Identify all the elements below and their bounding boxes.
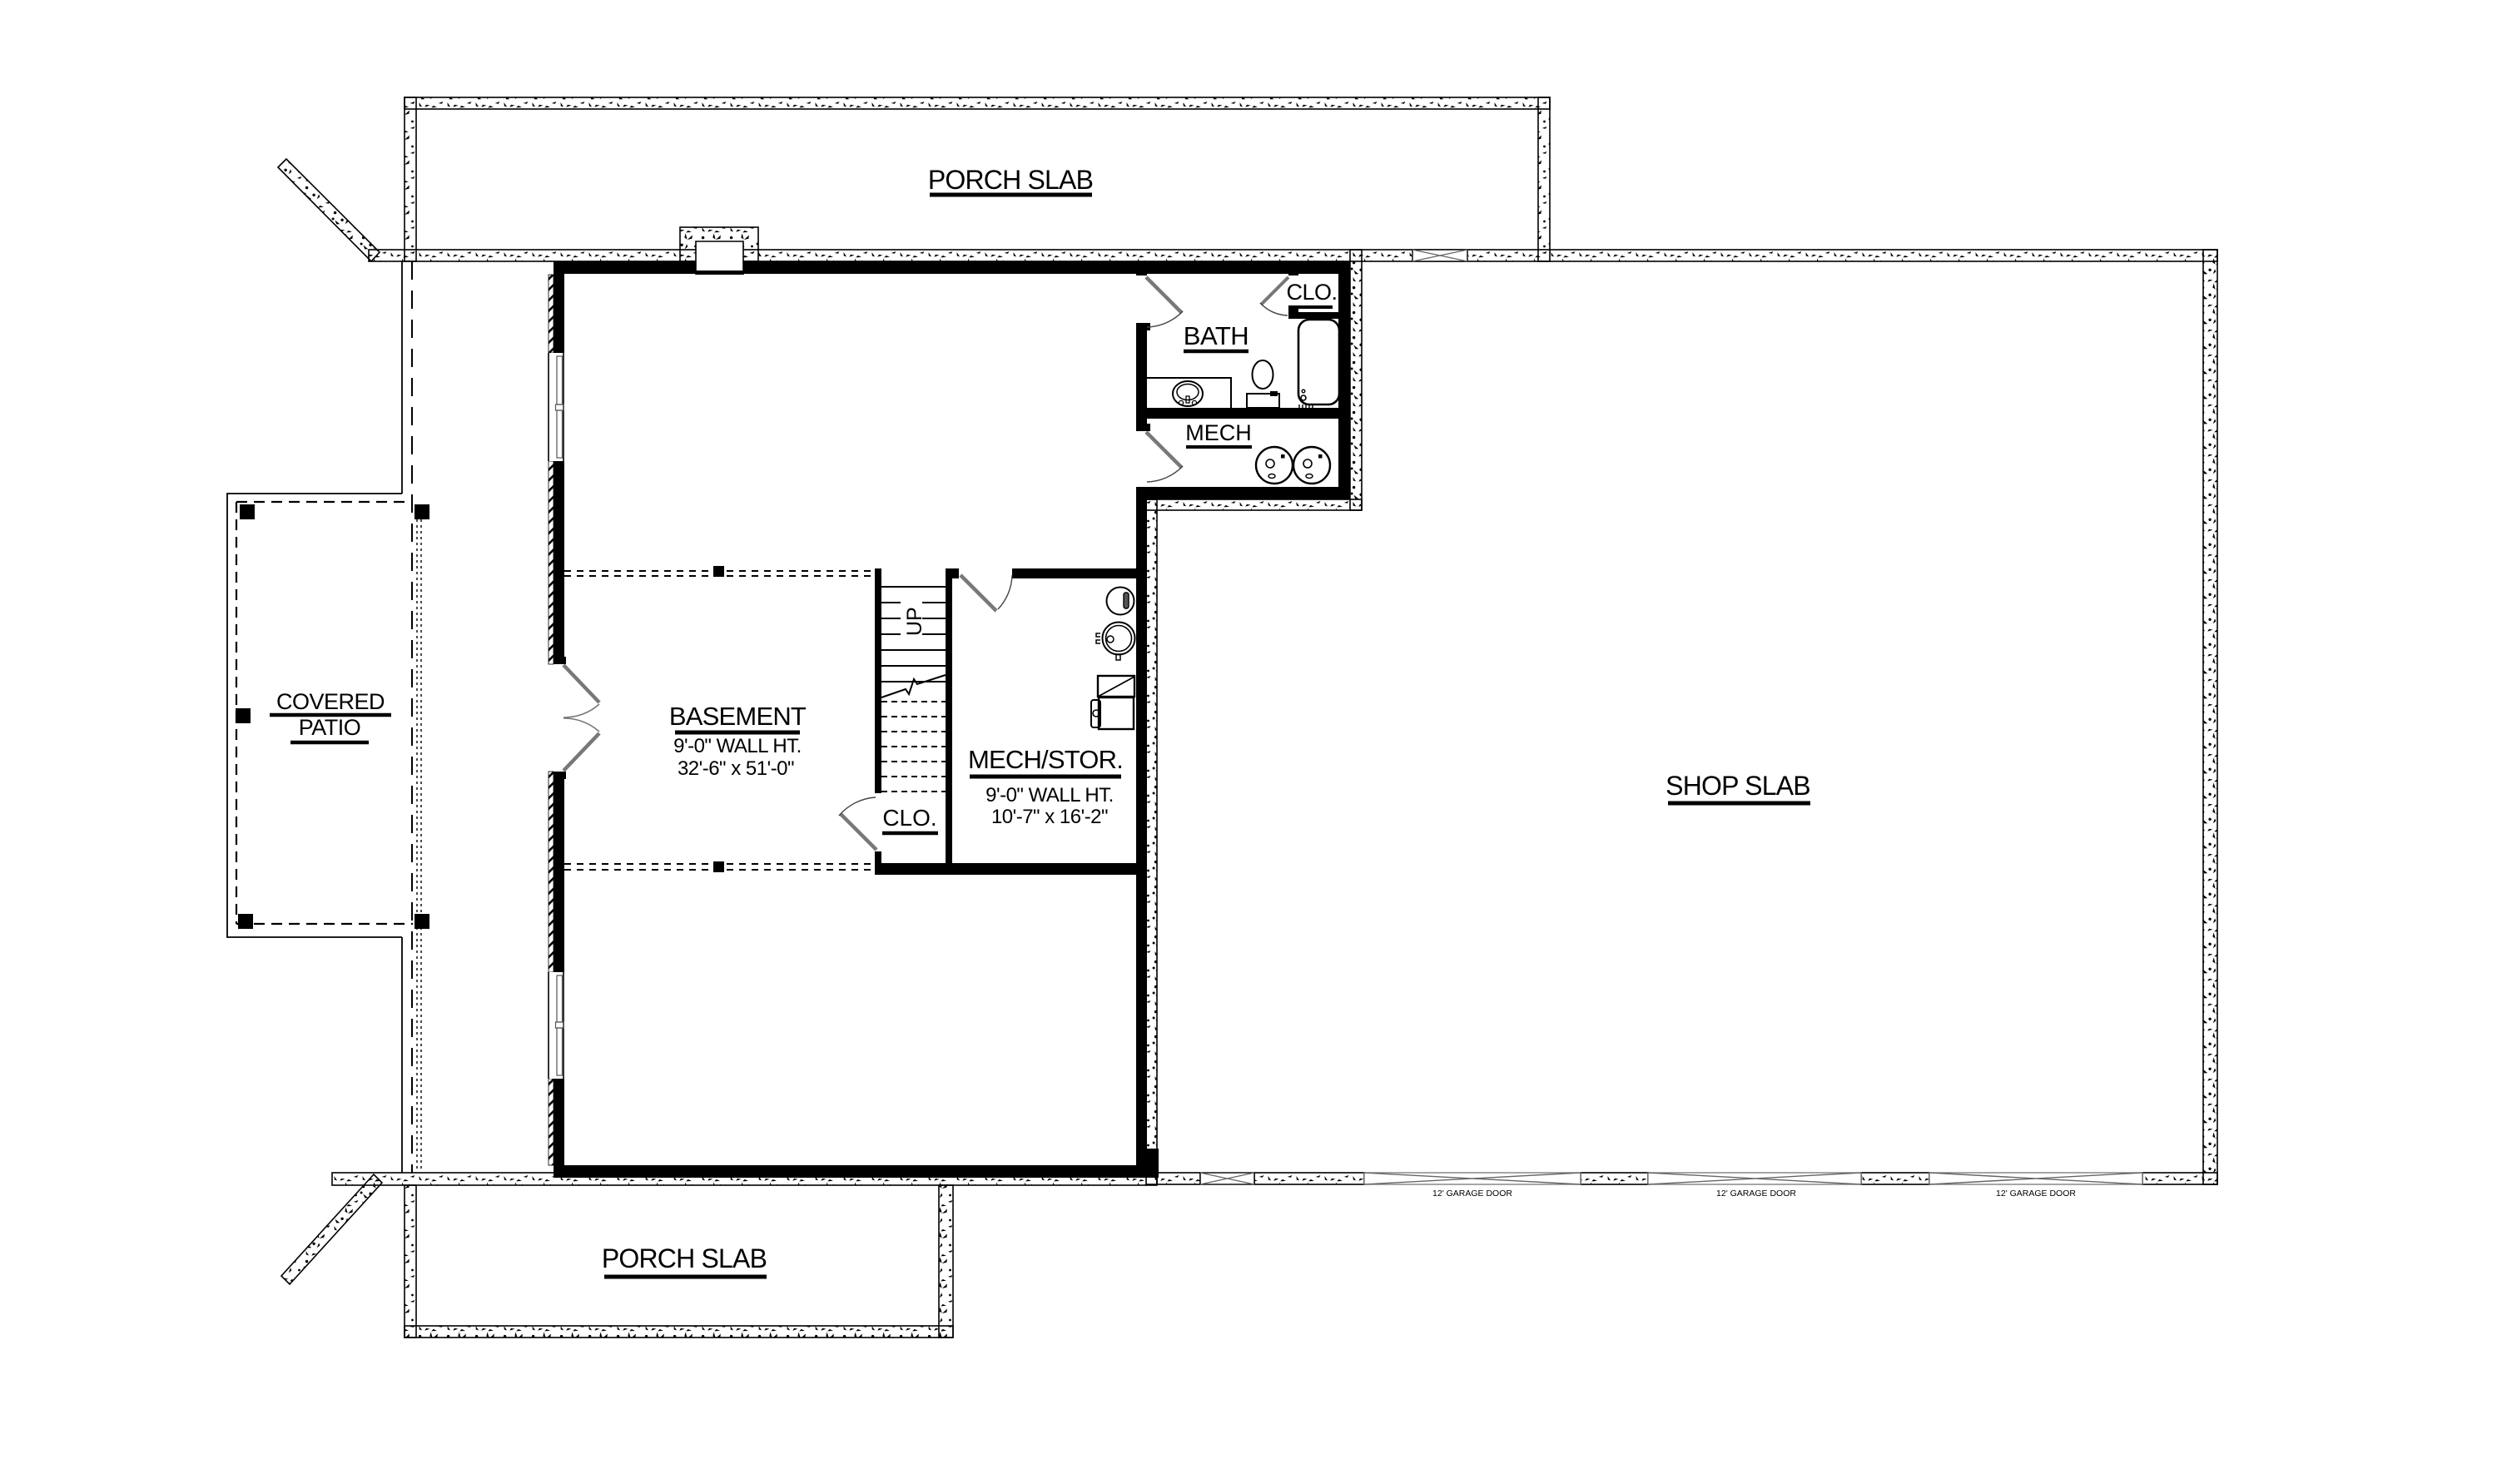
svg-text:PATIO: PATIO	[299, 715, 361, 740]
svg-text:12' GARAGE DOOR: 12' GARAGE DOOR	[1996, 1189, 2076, 1199]
svg-text:SHOP SLAB: SHOP SLAB	[1665, 771, 1810, 801]
svg-text:CLO.: CLO.	[1286, 280, 1337, 305]
svg-text:BASEMENT: BASEMENT	[669, 702, 807, 731]
svg-text:12' GARAGE DOOR: 12' GARAGE DOOR	[1716, 1189, 1796, 1199]
svg-text:9'-0" WALL HT.: 9'-0" WALL HT.	[985, 784, 1114, 807]
svg-text:UP: UP	[903, 607, 926, 636]
svg-text:COVERED: COVERED	[276, 689, 385, 714]
svg-text:32'-6" x 51'-0": 32'-6" x 51'-0"	[678, 757, 794, 780]
svg-text:CLO.: CLO.	[882, 805, 936, 831]
svg-text:PORCH SLAB: PORCH SLAB	[602, 1243, 767, 1273]
svg-text:10'-7" x 16'-2": 10'-7" x 16'-2"	[991, 806, 1108, 828]
svg-text:BATH: BATH	[1184, 321, 1248, 350]
svg-text:PORCH SLAB: PORCH SLAB	[928, 165, 1093, 195]
svg-text:12' GARAGE DOOR: 12' GARAGE DOOR	[1432, 1189, 1512, 1199]
svg-text:MECH: MECH	[1185, 420, 1252, 445]
svg-text:9'-0" WALL HT.: 9'-0" WALL HT.	[673, 735, 802, 757]
svg-text:MECH/STOR.: MECH/STOR.	[968, 745, 1123, 774]
